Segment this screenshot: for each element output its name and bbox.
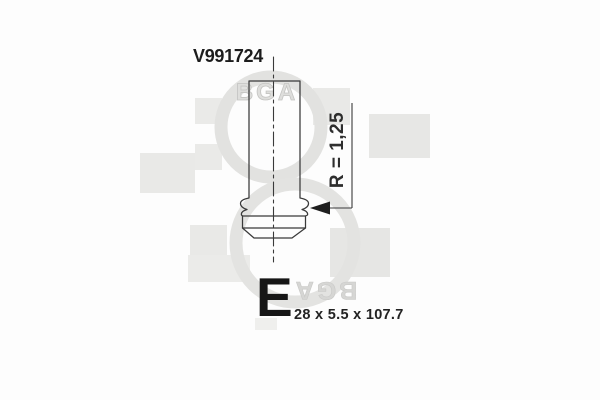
catalog-drawing-page: BGA BGA R = 1,25 V991724 E 28 x 5.5 x 10… bbox=[0, 0, 600, 400]
watermark-square bbox=[140, 153, 195, 193]
valve-size-label: 28 x 5.5 x 107.7 bbox=[294, 307, 404, 323]
watermark-brand-text: BGA bbox=[236, 79, 298, 106]
part-number: V991724 bbox=[193, 46, 263, 66]
watermark-square bbox=[195, 144, 222, 170]
watermark-square bbox=[190, 225, 227, 255]
valve-drawing-canvas: BGA BGA R = 1,25 V991724 E 28 x 5.5 x 10… bbox=[0, 0, 600, 400]
watermark-brand-text-rotated: BGA bbox=[293, 276, 358, 304]
watermark-square bbox=[369, 114, 430, 158]
valve-category-letter: E bbox=[256, 266, 293, 328]
dimension-arrow-icon bbox=[310, 202, 330, 215]
radius-dimension-label: R = 1,25 bbox=[327, 112, 348, 188]
